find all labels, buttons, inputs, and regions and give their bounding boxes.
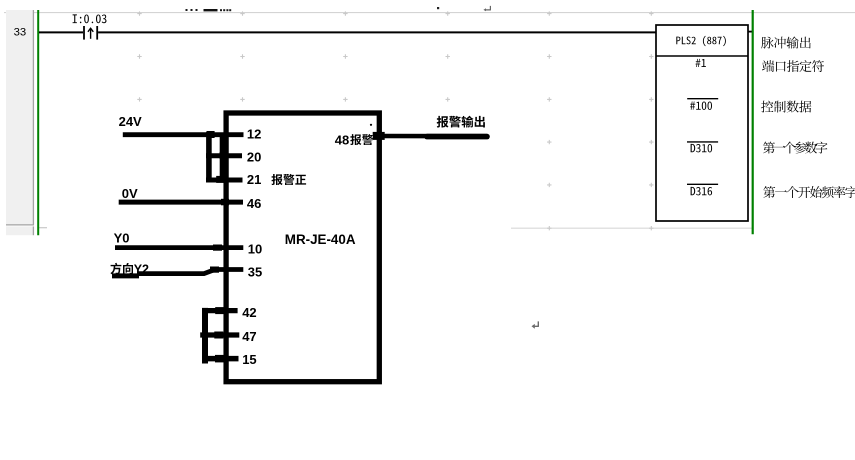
svg-text:15: 15: [242, 352, 256, 367]
svg-text:21: 21: [247, 172, 261, 187]
svg-text:33: 33: [14, 27, 27, 39]
svg-text:48: 48: [335, 132, 349, 147]
svg-text:0V: 0V: [122, 186, 138, 201]
svg-text:Y0: Y0: [114, 231, 130, 246]
svg-text:Y2: Y2: [134, 263, 149, 277]
svg-text:10: 10: [248, 241, 262, 256]
svg-text:47: 47: [242, 329, 256, 344]
svg-text:20: 20: [247, 149, 261, 164]
svg-text:12: 12: [247, 126, 261, 141]
svg-text:24V: 24V: [119, 114, 142, 129]
svg-text:42: 42: [242, 305, 256, 320]
svg-text:46: 46: [247, 196, 261, 211]
svg-text:35: 35: [248, 265, 262, 280]
svg-text:MR-JE-40A: MR-JE-40A: [285, 232, 356, 247]
